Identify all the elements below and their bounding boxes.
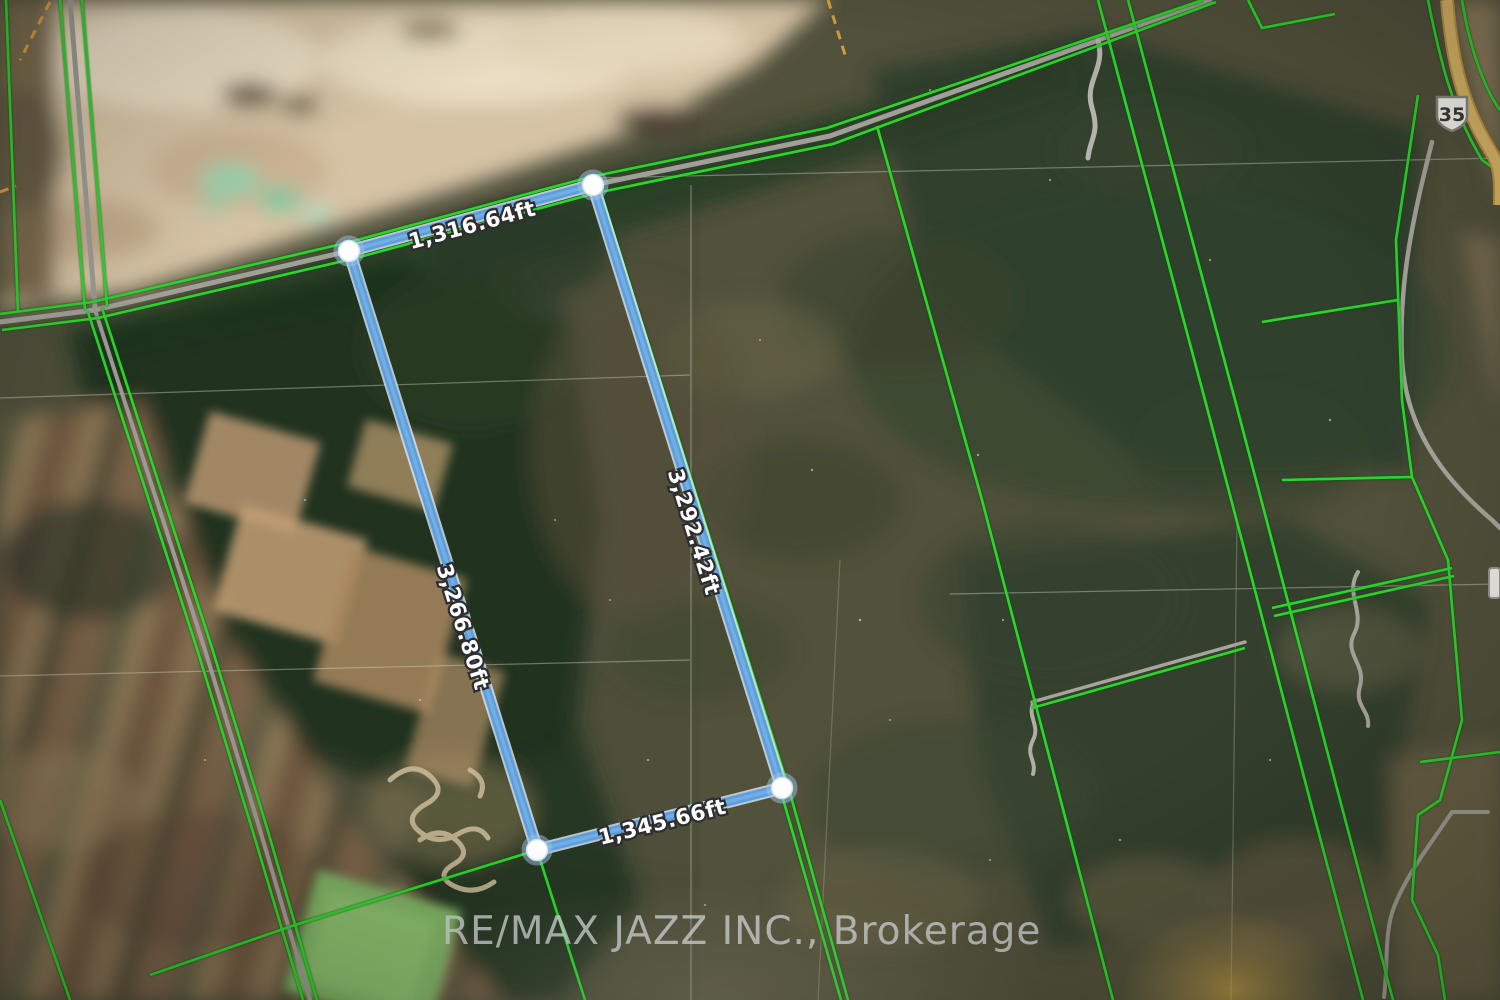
satellite-map: 35 1,316.64ft 3,292.42ft 3,266.80ft 1,34…	[0, 0, 1500, 1000]
vignette	[0, 0, 1500, 1000]
map-canvas: 35 1,316.64ft 3,292.42ft 3,266.80ft 1,34…	[0, 0, 1500, 1000]
